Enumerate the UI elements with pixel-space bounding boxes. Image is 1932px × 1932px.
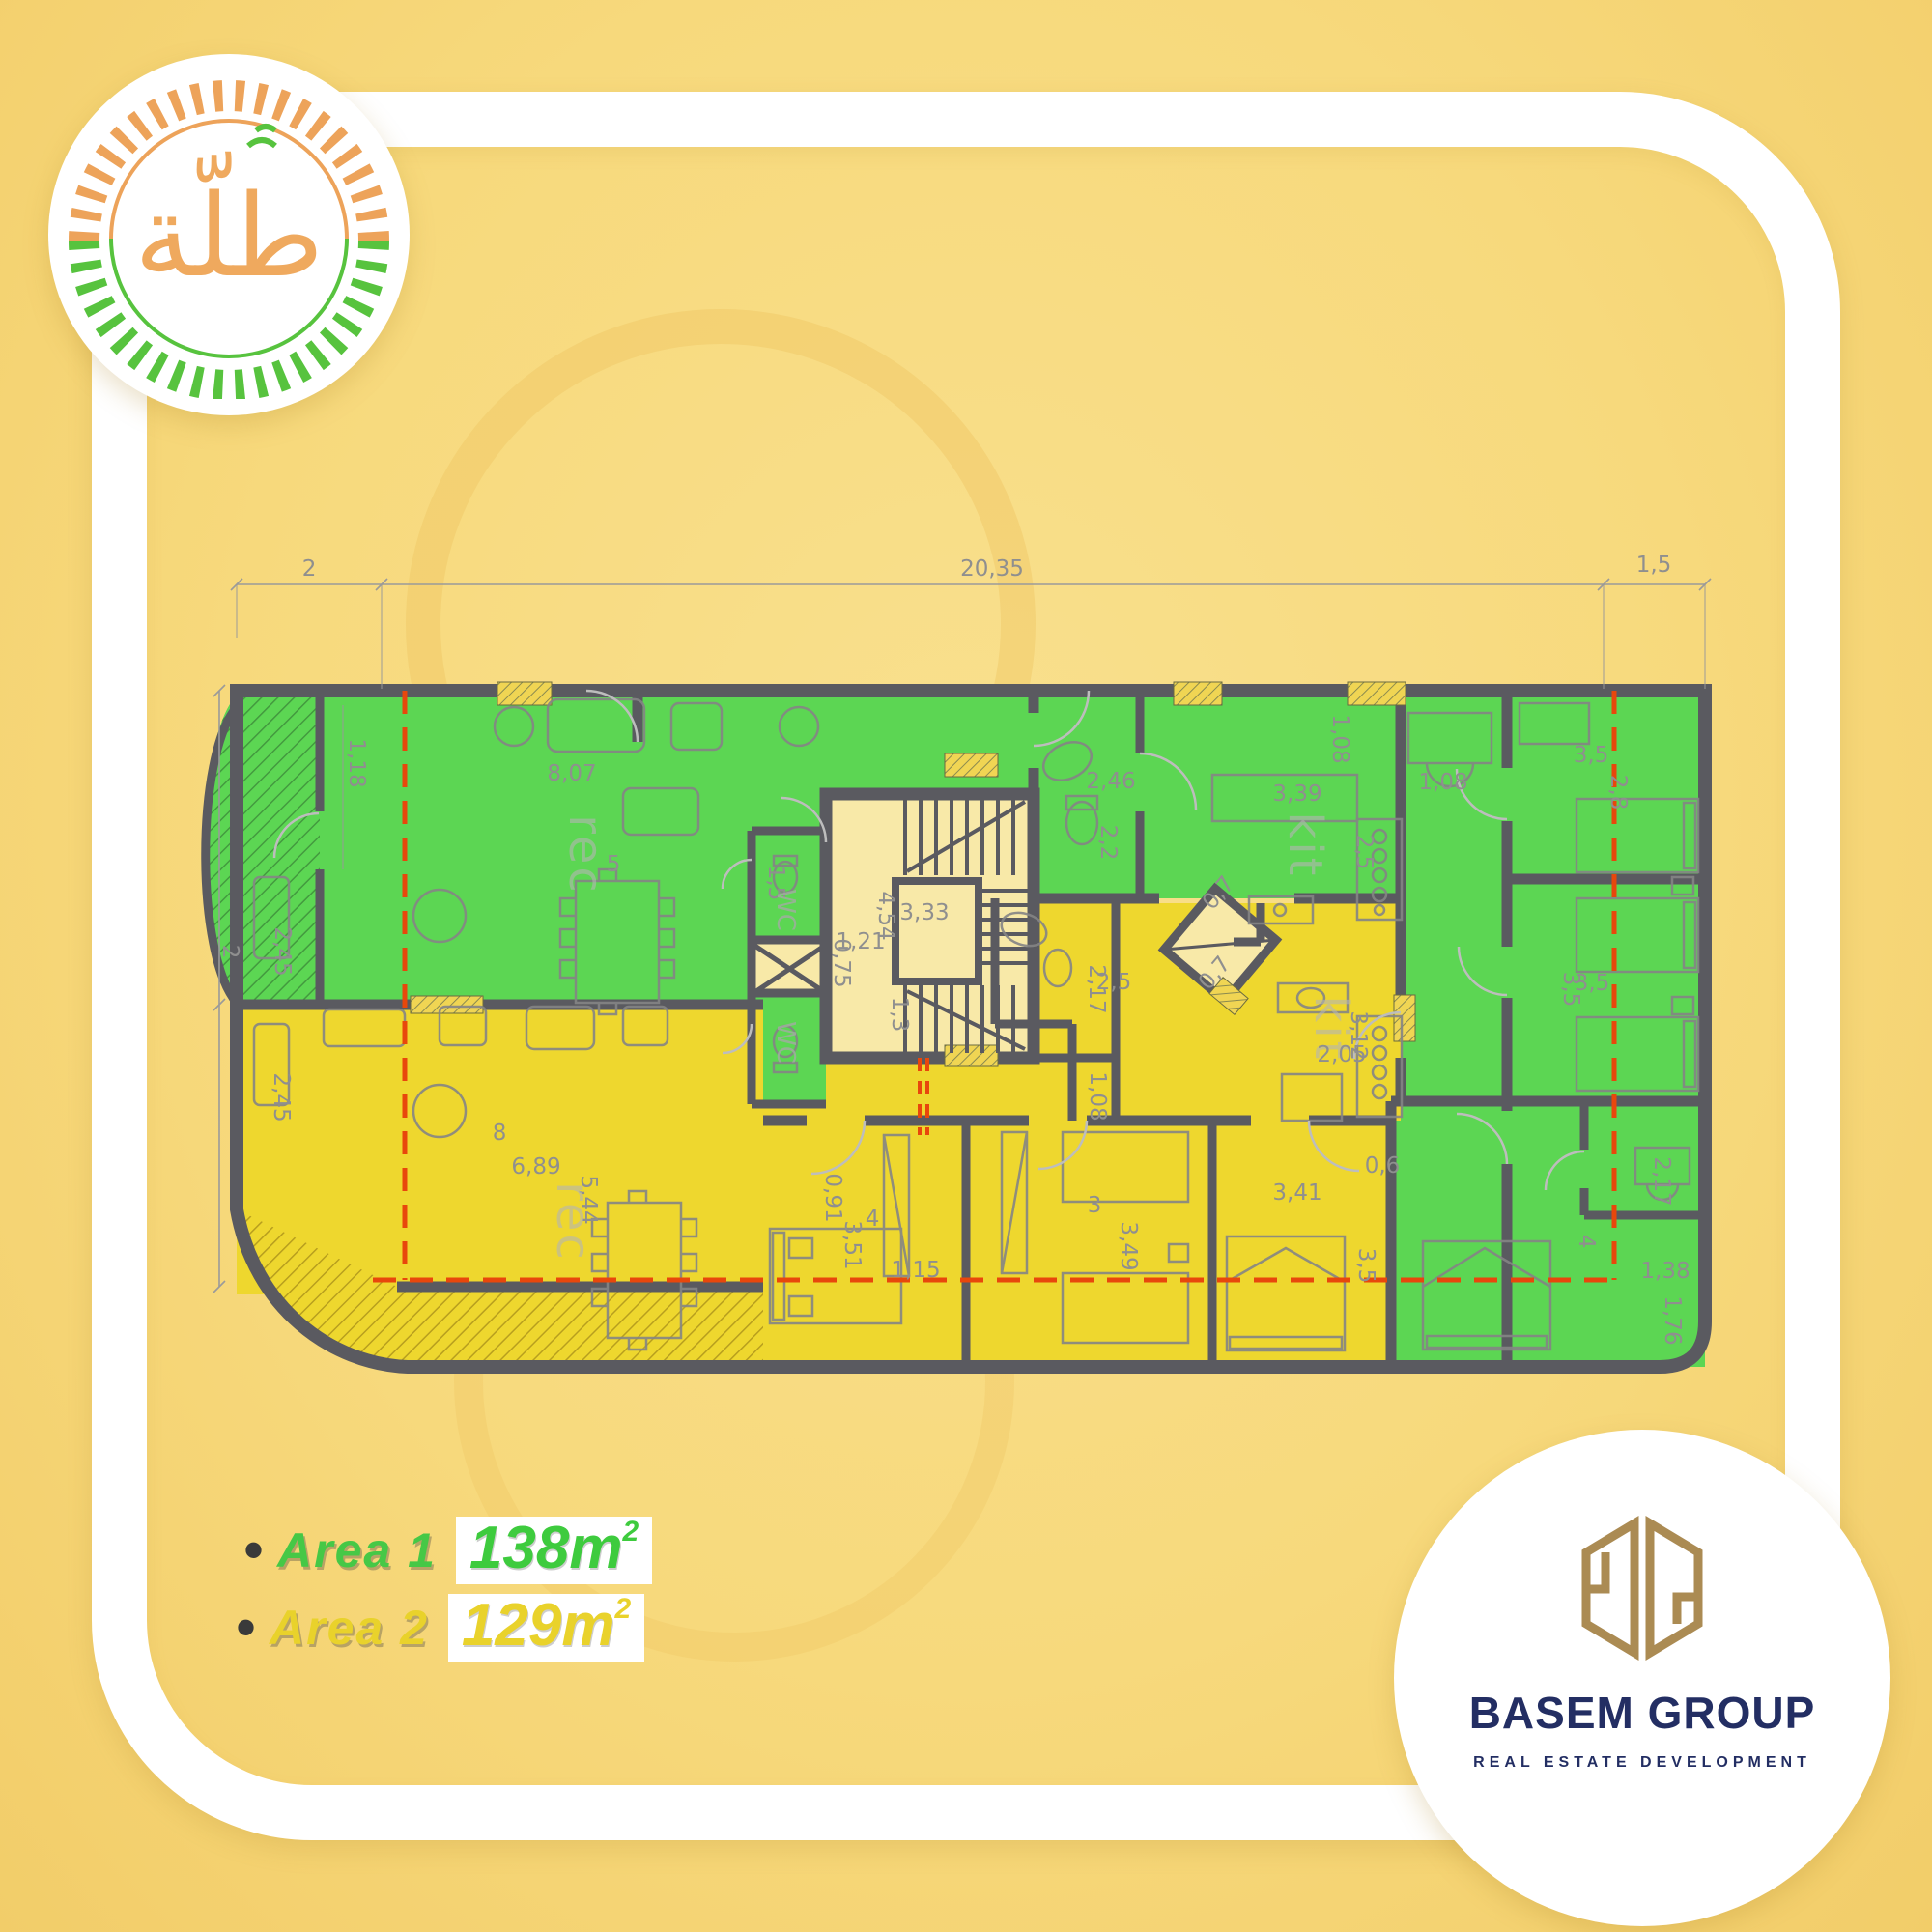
plan-label: 2,05	[1317, 1042, 1366, 1067]
plan-label: 0,75	[829, 938, 854, 987]
basem-logo-badge: BASEM GROUP REAL ESTATE DEVELOPMENT	[1394, 1430, 1890, 1926]
area2-row: • Area 2 129m2	[236, 1590, 652, 1665]
plan-label: 3,5	[1353, 1248, 1378, 1284]
plan-label: 1,08	[1418, 770, 1467, 795]
plan-label: 1,76	[1660, 1295, 1685, 1345]
plan-label: 2,8	[1605, 775, 1631, 810]
area1-label: Area 1	[277, 1522, 437, 1578]
plan-label: kit	[1278, 812, 1332, 879]
plan-label: 0,91	[820, 1173, 845, 1222]
talla-arabic-text: طلّة	[134, 151, 324, 302]
plan-label: 2,5	[1351, 835, 1377, 870]
plan-label: 20,35	[960, 556, 1024, 582]
basem-logo: BASEM GROUP REAL ESTATE DEVELOPMENT	[1415, 1451, 1869, 1905]
plan-label: 0,6	[1365, 1153, 1401, 1179]
plan-label: 4	[1574, 1235, 1599, 1249]
plan-label: 5	[607, 852, 621, 877]
plan-label: 4	[866, 1207, 880, 1232]
area2-value: 129m	[462, 1592, 615, 1659]
basem-tagline: REAL ESTATE DEVELOPMENT	[1473, 1754, 1811, 1771]
plan-label: 8	[493, 1121, 507, 1146]
plan-label: 2,45	[269, 1072, 294, 1122]
plan-label: 8,07	[547, 761, 596, 786]
plan-label: 3,51	[839, 1220, 865, 1269]
basem-name: BASEM GROUP	[1469, 1688, 1816, 1738]
talla-logo-badge: طلّة	[48, 54, 410, 415]
plan-label: 1,08	[1327, 714, 1352, 763]
plan-label: 3,33	[899, 900, 949, 925]
poster: طلّة BASEM GROUP REAL ESTATE DEVELOPMENT	[0, 0, 1932, 1932]
plan-label: 3,39	[1272, 781, 1321, 807]
area1-value: 138m	[469, 1515, 623, 1581]
plan-label: 2,45	[270, 926, 295, 976]
plan-label: 2,17	[1649, 1156, 1674, 1206]
plan-label: 2,46	[1086, 769, 1135, 794]
plan-label: 2	[217, 945, 242, 959]
plan-label: WC	[771, 889, 800, 931]
area2-sup: 2	[614, 1593, 631, 1625]
floor-plan: 220,351,51,1822,458,07rec586,895,44rec2,…	[179, 551, 1724, 1401]
plan-label: 3,49	[1116, 1221, 1141, 1270]
area1-row: • Area 1 138m2	[243, 1513, 652, 1588]
plan-label: 3,5	[1558, 972, 1583, 1008]
plan-label: 1,15	[891, 1258, 940, 1283]
area2-label: Area 2	[270, 1600, 429, 1656]
talla-logo: طلّة	[65, 71, 393, 399]
plan-label: 2,5	[1096, 970, 1132, 995]
plan-label: 1,08	[1085, 1071, 1110, 1121]
plan-label: 1,38	[1640, 1259, 1690, 1284]
area-legend: • Area 1 138m2 • Area 2 129m2	[243, 1513, 652, 1665]
area1-value-chip: 138m2	[456, 1517, 652, 1584]
plan-label: 1,5	[1636, 553, 1672, 578]
area1-sup: 2	[622, 1516, 639, 1548]
bg-monogram-icon	[1586, 1523, 1698, 1653]
plan-label: 6,89	[511, 1154, 560, 1179]
plan-label: WC	[771, 1021, 800, 1064]
plan-label: 2,2	[1095, 825, 1121, 861]
plan-label: 3,5	[1574, 743, 1609, 768]
plan-label: 3	[1088, 1193, 1102, 1218]
area2-value-chip: 129m2	[448, 1594, 644, 1662]
plan-label: 1,18	[344, 738, 369, 787]
plan-label: 1,3	[887, 997, 912, 1033]
logo-diacritic	[248, 127, 275, 146]
plan-label: rec	[546, 1181, 600, 1263]
plan-label: rec	[558, 814, 612, 895]
plan-label: 3,41	[1272, 1180, 1321, 1206]
plan-label: 2	[302, 556, 317, 582]
